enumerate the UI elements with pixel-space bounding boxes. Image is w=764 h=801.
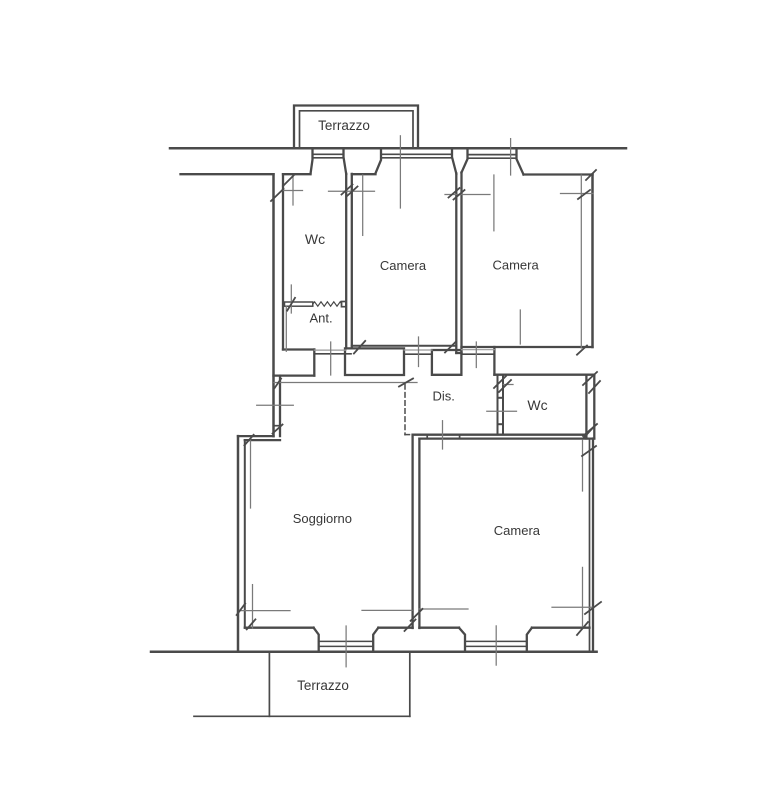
svg-text:Ant.: Ant. (309, 311, 332, 326)
svg-text:Dis.: Dis. (433, 389, 455, 404)
svg-text:Wc: Wc (527, 397, 547, 413)
svg-text:Wc: Wc (305, 231, 325, 247)
svg-text:Terrazzo: Terrazzo (297, 678, 349, 693)
svg-text:Camera: Camera (494, 523, 541, 538)
svg-text:Soggiorno: Soggiorno (293, 511, 352, 526)
svg-text:Camera: Camera (492, 258, 539, 273)
svg-text:Terrazzo: Terrazzo (318, 118, 370, 133)
svg-text:Camera: Camera (380, 258, 427, 273)
